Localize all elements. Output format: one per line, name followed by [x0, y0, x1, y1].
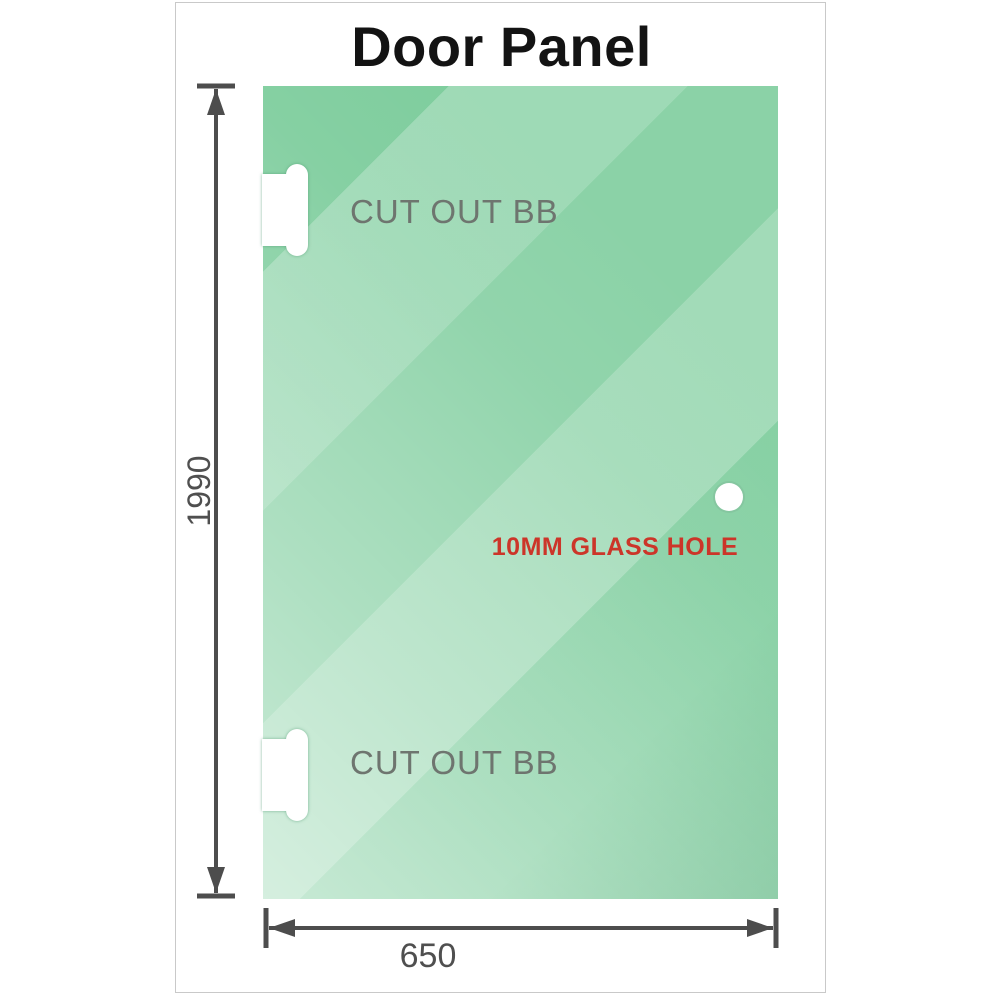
height-dimension-label: 1990: [179, 431, 219, 551]
width-dimension-arrow: [258, 903, 784, 953]
page-title: Door Panel: [175, 14, 828, 79]
diagram-canvas: Door Panel CUT OUT BB CUT OUT BB 10MM GL…: [0, 0, 1000, 1000]
cutout-capsule: [286, 729, 308, 821]
cutout-bottom-label: CUT OUT BB: [350, 744, 630, 782]
glass-panel: CUT OUT BB CUT OUT BB 10MM GLASS HOLE: [263, 86, 778, 899]
glass-hole: [715, 483, 743, 511]
cutout-top-label: CUT OUT BB: [350, 193, 630, 231]
cutout-capsule: [286, 164, 308, 256]
width-dimension-label: 650: [388, 937, 468, 976]
glass-hole-label: 10MM GLASS HOLE: [450, 533, 780, 562]
